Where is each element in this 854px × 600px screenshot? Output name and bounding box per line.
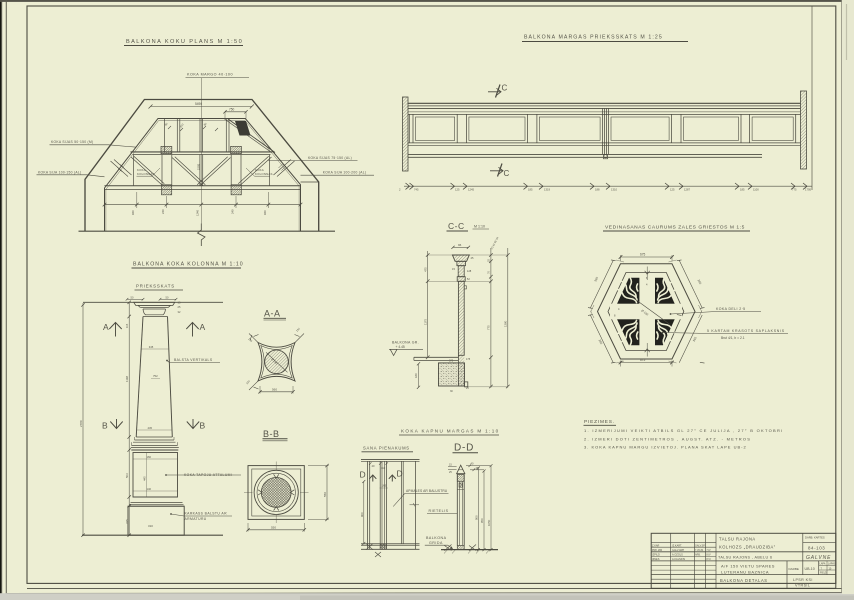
svg-text:BALKONA DETALAS: BALKONA DETALAS xyxy=(720,578,768,583)
svg-text:KOLONNAS: KOLONNAS xyxy=(137,172,155,176)
svg-text:VTRSIL: VTRSIL xyxy=(795,583,810,587)
svg-text:96: 96 xyxy=(458,243,462,247)
svg-text:125: 125 xyxy=(455,188,460,192)
svg-text:950: 950 xyxy=(480,518,484,523)
svg-text:240: 240 xyxy=(231,209,235,214)
svg-text:IZ.KART.: IZ.KART. xyxy=(672,544,682,547)
svg-text:D: D xyxy=(397,469,403,479)
svg-text:B-B: B-B xyxy=(263,429,280,439)
svg-text:DARB. KARTES: DARB. KARTES xyxy=(805,536,825,540)
svg-text:140: 140 xyxy=(147,487,152,491)
svg-text:185: 185 xyxy=(740,188,745,192)
svg-text:775: 775 xyxy=(487,325,491,330)
svg-text:BALKONA: BALKONA xyxy=(426,536,447,540)
svg-text:B: B xyxy=(200,421,206,431)
svg-text:Brut 4/1, b = 2.1: Brut 4/1, b = 2.1 xyxy=(721,336,745,340)
svg-text:1245: 1245 xyxy=(468,188,474,192)
svg-text:315: 315 xyxy=(125,519,129,524)
svg-text:GALVNE: GALVNE xyxy=(806,555,831,561)
svg-text:2. IZMERI DOTI ZENTIMETROS: 2. IZMERI DOTI ZENTIMETROS , AUGST. ATZ.… xyxy=(584,436,751,441)
svg-text:8.IV: 8.IV xyxy=(706,553,711,556)
svg-text:1050: 1050 xyxy=(487,519,491,526)
svg-text:750: 750 xyxy=(229,107,235,111)
svg-text:B: B xyxy=(102,421,108,431)
svg-text:128: 128 xyxy=(467,269,472,273)
svg-text:900: 900 xyxy=(360,512,364,517)
svg-text:180: 180 xyxy=(414,373,418,378)
svg-text:1175: 1175 xyxy=(423,319,427,325)
svg-text:KOKA KAPNU MARGAS M 1:10: KOKA KAPNU MARGAS M 1:10 xyxy=(401,429,500,434)
svg-text:503: 503 xyxy=(125,473,129,478)
svg-text:310: 310 xyxy=(148,524,153,528)
svg-text:5490: 5490 xyxy=(195,102,202,106)
svg-text:110: 110 xyxy=(381,466,386,470)
svg-text:LAPAS: LAPAS xyxy=(828,563,836,566)
svg-text:BALSTA VERTIKALS: BALSTA VERTIKALS xyxy=(174,358,213,362)
svg-text:ARMATURU: ARMATURU xyxy=(185,517,207,521)
svg-text:TALSU RAJONA: TALSU RAJONA xyxy=(719,537,756,542)
svg-text:LAPA: LAPA xyxy=(820,563,826,566)
svg-text:KOLONNAS: KOLONNAS xyxy=(255,172,273,176)
svg-text:VEDINASANAS CAURUMS ZALES G: VEDINASANAS CAURUMS ZALES GRIESTOS M 1:5 xyxy=(605,225,745,231)
svg-text:550: 550 xyxy=(271,525,276,529)
svg-text:445: 445 xyxy=(148,426,153,430)
svg-text:7.VII.84: 7.VII.84 xyxy=(695,549,704,552)
svg-text:BALKONA MARGAS PRIEKSSKATS: BALKONA MARGAS PRIEKSSKATS M 1:25 xyxy=(524,35,663,41)
svg-text:TALSU RAJONS , ABELU 6: TALSU RAJONS , ABELU 6 xyxy=(718,555,772,559)
svg-text:84-103: 84-103 xyxy=(808,546,825,551)
svg-text:FIELD: FIELD xyxy=(820,572,827,575)
svg-text:1319: 1319 xyxy=(544,188,550,192)
svg-text:165: 165 xyxy=(382,484,387,488)
svg-text:KOLHOZS „DRAUDZIBA”: KOLHOZS „DRAUDZIBA” xyxy=(719,544,776,549)
svg-text:1240: 1240 xyxy=(196,210,200,216)
svg-text:575: 575 xyxy=(449,360,454,363)
svg-text:675: 675 xyxy=(640,358,646,362)
svg-text:A: A xyxy=(103,322,109,332)
svg-text:GALV.SP: GALV.SP xyxy=(695,544,705,547)
svg-text:A.KALNINS: A.KALNINS xyxy=(672,558,685,561)
svg-text:2780: 2780 xyxy=(79,420,83,427)
svg-text:940: 940 xyxy=(131,210,135,215)
svg-text:675: 675 xyxy=(640,253,646,257)
svg-text:1380: 1380 xyxy=(503,320,507,327)
svg-text:KOKA MARGO 40·100: KOKA MARGO 40·100 xyxy=(187,73,233,77)
svg-text:560: 560 xyxy=(272,387,277,391)
svg-text:KOKA SIJA 100·200 (AL): KOKA SIJA 100·200 (AL) xyxy=(323,171,366,175)
svg-text:A/F 150 VIETU SPARES: A/F 150 VIETU SPARES xyxy=(721,564,775,569)
svg-text:1100: 1100 xyxy=(753,188,759,192)
svg-text:1198: 1198 xyxy=(125,376,129,382)
svg-text:SANA PIENAKUMS: SANA PIENAKUMS xyxy=(363,446,410,451)
svg-text:+ 4.45: + 4.45 xyxy=(396,345,405,349)
svg-text:GRIDA: GRIDA xyxy=(429,541,443,545)
svg-text:BALKONA KOKA KOLONNA M 1:1: BALKONA KOKA KOLONNA M 1:10 xyxy=(133,262,244,268)
svg-text:1310: 1310 xyxy=(611,188,617,192)
svg-text:C: C xyxy=(502,84,508,93)
svg-text:GALV.ARH: GALV.ARH xyxy=(672,549,684,552)
svg-text:RIETELIS: RIETELIS xyxy=(429,509,449,513)
svg-text:1. IZMERIJUMI VEIKTI ATBI: 1. IZMERIJUMI VEIKTI ATBILS GL 27° CE JU… xyxy=(584,428,784,433)
svg-text:D-D: D-D xyxy=(454,443,474,454)
svg-text:445: 445 xyxy=(142,476,146,481)
svg-text:1287: 1287 xyxy=(684,188,690,192)
svg-text:LUTERANU BAZNICA: LUTERANU BAZNICA xyxy=(721,569,769,574)
svg-text:M 1:10: M 1:10 xyxy=(474,225,485,229)
svg-text:LPSR KSI: LPSR KSI xyxy=(793,578,813,582)
svg-text:125: 125 xyxy=(670,188,675,192)
svg-text:175: 175 xyxy=(466,358,471,361)
svg-text:PRK.IZM: PRK.IZM xyxy=(652,549,662,552)
svg-text:Z.KAR: Z.KAR xyxy=(652,544,660,547)
svg-text:BALKONA KOKU PLANS M 1:50: BALKONA KOKU PLANS M 1:50 xyxy=(126,39,243,45)
svg-text:IZNES: IZNES xyxy=(652,558,660,561)
svg-text:C-C: C-C xyxy=(448,221,465,231)
svg-text:8.VI: 8.VI xyxy=(706,558,711,561)
svg-text:KOKA DELI 2·5: KOKA DELI 2·5 xyxy=(716,307,746,311)
svg-text:940: 940 xyxy=(263,210,267,215)
svg-text:745: 745 xyxy=(414,188,419,192)
svg-text:188: 188 xyxy=(595,188,600,192)
svg-text:C: C xyxy=(504,169,510,178)
svg-text:240: 240 xyxy=(161,209,165,214)
svg-text:775: 775 xyxy=(792,188,797,192)
svg-text:160: 160 xyxy=(147,455,152,459)
svg-text:BALKONA GR.: BALKONA GR. xyxy=(392,341,419,345)
svg-text:KOKA SIJAS 50·150 (M): KOKA SIJAS 50·150 (M) xyxy=(51,140,93,144)
svg-text:IZPILD: IZPILD xyxy=(652,553,660,556)
svg-text:D: D xyxy=(360,470,366,480)
svg-text:KOKA SIJA 100·150 (AL): KOKA SIJA 100·150 (AL) xyxy=(38,170,81,174)
svg-text:3. KOKA KAPNU MARGU IZVIET: 3. KOKA KAPNU MARGU IZVIETOJ. PLANA SKAT… xyxy=(584,445,747,450)
svg-text:900: 900 xyxy=(474,515,478,520)
svg-text:475: 475 xyxy=(423,267,427,272)
svg-text:752: 752 xyxy=(153,374,158,378)
svg-text:A-A: A-A xyxy=(264,309,281,319)
svg-text:7.IV: 7.IV xyxy=(706,549,711,552)
svg-text:KARKASS BALSTU AR: KARKASS BALSTU AR xyxy=(185,512,228,516)
svg-text:UB-10: UB-10 xyxy=(805,567,815,571)
svg-text:KOKA SIJAS 75·150 (AL): KOKA SIJAS 75·150 (AL) xyxy=(308,156,352,160)
svg-text:DARBE: DARBE xyxy=(789,567,799,571)
svg-text:APMALES AR BALUSTRU: APMALES AR BALUSTRU xyxy=(406,489,448,493)
svg-text:345: 345 xyxy=(149,345,154,349)
svg-text:5 KARTAM KRASOTS SAPLAKSNIS: 5 KARTAM KRASOTS SAPLAKSNIS xyxy=(707,329,785,333)
svg-text:185: 185 xyxy=(528,188,533,192)
svg-text:A: A xyxy=(200,322,206,332)
svg-text:PRIEKSSKATS: PRIEKSSKATS xyxy=(136,284,175,289)
svg-text:1795: 1795 xyxy=(805,188,811,192)
svg-text:1595: 1595 xyxy=(197,163,201,170)
svg-text:PIEZIMES.: PIEZIMES. xyxy=(584,419,615,425)
svg-text:A.OZOLS: A.OZOLS xyxy=(672,553,683,556)
svg-text:115: 115 xyxy=(125,323,129,328)
svg-text:ARB.: ARB. xyxy=(695,553,701,556)
svg-text:550: 550 xyxy=(323,492,327,497)
